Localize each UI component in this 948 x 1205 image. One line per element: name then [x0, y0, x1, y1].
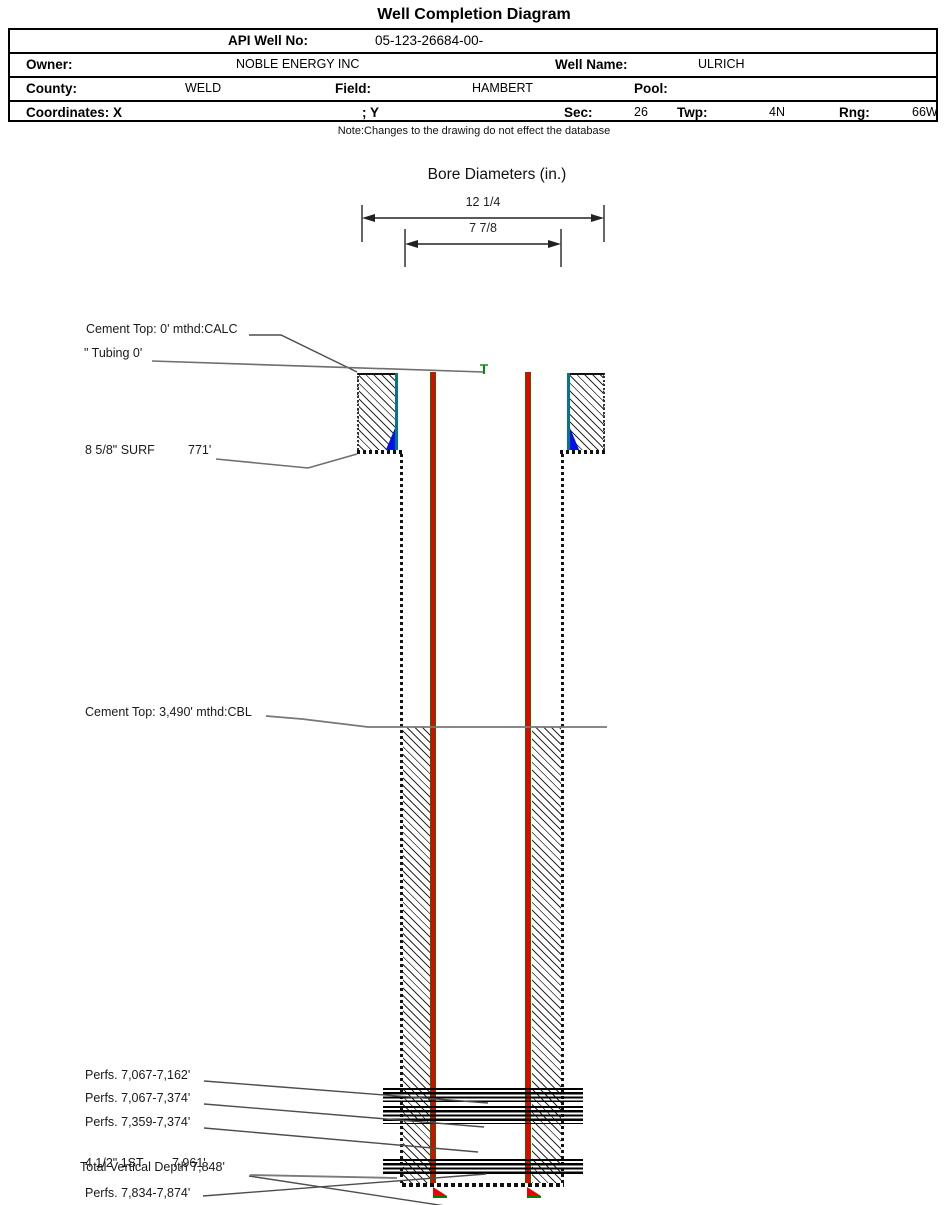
- tubing-label: " Tubing 0': [84, 346, 142, 360]
- inner-bore-dimension-label: 7 7/8: [433, 221, 533, 235]
- leader-surface-casing: [216, 454, 357, 468]
- bottom-marker-foot-right: [527, 1196, 541, 1198]
- perfs-2-label: Perfs. 7,067-7,374': [85, 1091, 190, 1105]
- table-row-coordinates: Coordinates: X ; Y Sec: 26 Twp: 4N Rng: …: [10, 102, 936, 124]
- perforation-band-1: [383, 1088, 583, 1102]
- surface-casing-left: [395, 373, 398, 454]
- leader-cement-top-production: [266, 716, 607, 727]
- tubing-string-left: [430, 372, 436, 1183]
- casing-shoe-right: [560, 450, 605, 454]
- coordinates-y-label: ; Y: [362, 105, 379, 120]
- tubing-string-right: [525, 372, 531, 1183]
- rng-value: 66W: [912, 105, 938, 119]
- arrowhead-icon: [362, 214, 375, 222]
- coordinates-label: Coordinates: X: [26, 105, 122, 120]
- outer-bore-dimension-label: 12 1/4: [433, 195, 533, 209]
- county-value: WELD: [185, 81, 221, 95]
- bottom-marker-right: [527, 1187, 541, 1196]
- rng-label: Rng:: [839, 105, 870, 120]
- perforation-band-3: [383, 1159, 583, 1174]
- county-label: County:: [26, 81, 77, 96]
- owner-label: Owner:: [26, 57, 73, 72]
- twp-value: 4N: [769, 105, 785, 119]
- table-row-county: County: WELD Field: HAMBERT Pool:: [10, 78, 936, 100]
- total-vertical-depth-label: Total Vertical Depth 7,848': [80, 1160, 225, 1174]
- surface-casing-depth: 771': [188, 443, 211, 457]
- well-bottom-line: [402, 1183, 564, 1187]
- page-title: Well Completion Diagram: [0, 6, 948, 24]
- perfs-3-label: Perfs. 7,359-7,374': [85, 1115, 190, 1129]
- owner-value: NOBLE ENERGY INC: [236, 57, 359, 71]
- table-row-api: API Well No: 05-123-26684-00-: [10, 30, 936, 52]
- casing-shoe-left: [357, 450, 405, 454]
- arrowhead-icon: [591, 214, 604, 222]
- borehole-wall-right: [561, 454, 564, 1183]
- api-value: 05-123-26684-00-: [375, 33, 483, 48]
- table-row-owner: Owner: NOBLE ENERGY INC Well Name: ULRIC…: [10, 54, 936, 76]
- database-note: Note:Changes to the drawing do not effec…: [0, 125, 948, 137]
- bottom-marker-left: [433, 1187, 447, 1196]
- well-completion-diagram-page: Well Completion Diagram API Well No: 05-…: [0, 0, 948, 1205]
- cement-top-surface-label: Cement Top: 0' mthd:CALC: [86, 322, 238, 336]
- leader-perfs-3: [204, 1128, 478, 1152]
- well-info-table: API Well No: 05-123-26684-00- Owner: NOB…: [8, 28, 938, 122]
- arrowhead-icon: [548, 240, 561, 248]
- bottom-marker-foot-left: [433, 1196, 447, 1198]
- leader-cement-top-surface: [249, 335, 357, 372]
- api-label: API Well No:: [228, 33, 308, 48]
- field-label: Field:: [335, 81, 371, 96]
- perforation-band-2: [383, 1106, 583, 1124]
- leader-total-vertical-depth: [250, 1175, 397, 1178]
- surface-casing-right: [567, 373, 570, 454]
- bore-diameters-title: Bore Diameters (in.): [297, 166, 697, 184]
- arrowhead-icon: [405, 240, 418, 248]
- field-value: HAMBERT: [472, 81, 533, 95]
- leader-tubing: [152, 361, 483, 372]
- perfs-4-label: Perfs. 7,834-7,874': [85, 1186, 190, 1200]
- sec-value: 26: [634, 105, 648, 119]
- cement-top-production-label: Cement Top: 3,490' mthd:CBL: [85, 705, 252, 719]
- sec-label: Sec:: [564, 105, 593, 120]
- surface-casing-label: 8 5/8" SURF: [85, 443, 155, 457]
- pool-label: Pool:: [634, 81, 668, 96]
- perfs-1-label: Perfs. 7,067-7,162': [85, 1068, 190, 1082]
- twp-label: Twp:: [677, 105, 708, 120]
- well-name-value: ULRICH: [698, 57, 745, 71]
- well-name-label: Well Name:: [555, 57, 628, 72]
